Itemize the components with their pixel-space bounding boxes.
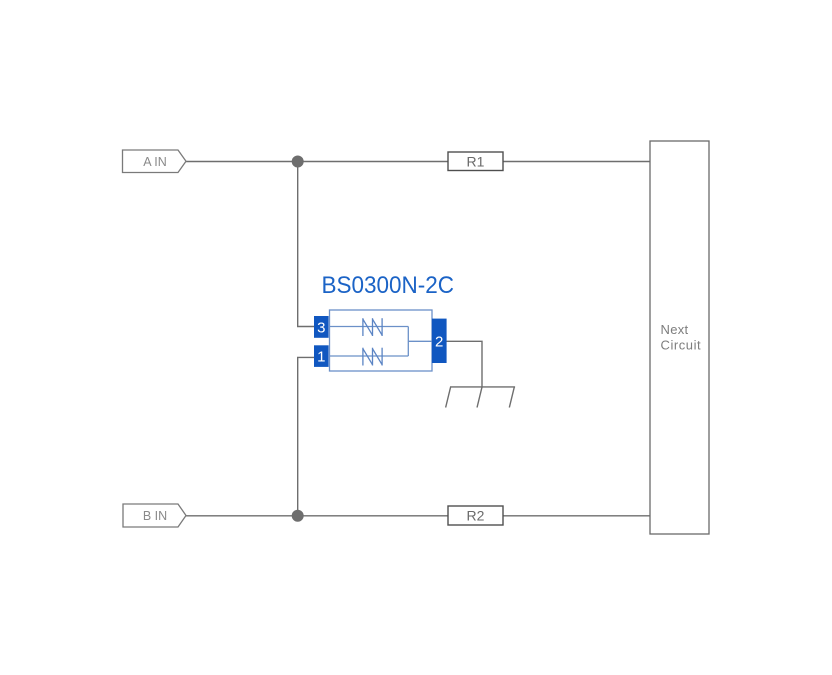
svg-text:Circuit: Circuit	[661, 338, 702, 353]
svg-text:R1: R1	[467, 153, 485, 169]
svg-text:R2: R2	[467, 508, 485, 524]
svg-text:Next: Next	[661, 322, 689, 337]
svg-text:3: 3	[317, 319, 325, 336]
svg-text:2: 2	[435, 334, 443, 351]
svg-text:A IN: A IN	[143, 155, 167, 169]
svg-text:BS0300N-2C: BS0300N-2C	[322, 272, 455, 299]
svg-text:B IN: B IN	[143, 509, 167, 523]
svg-text:1: 1	[317, 348, 325, 365]
